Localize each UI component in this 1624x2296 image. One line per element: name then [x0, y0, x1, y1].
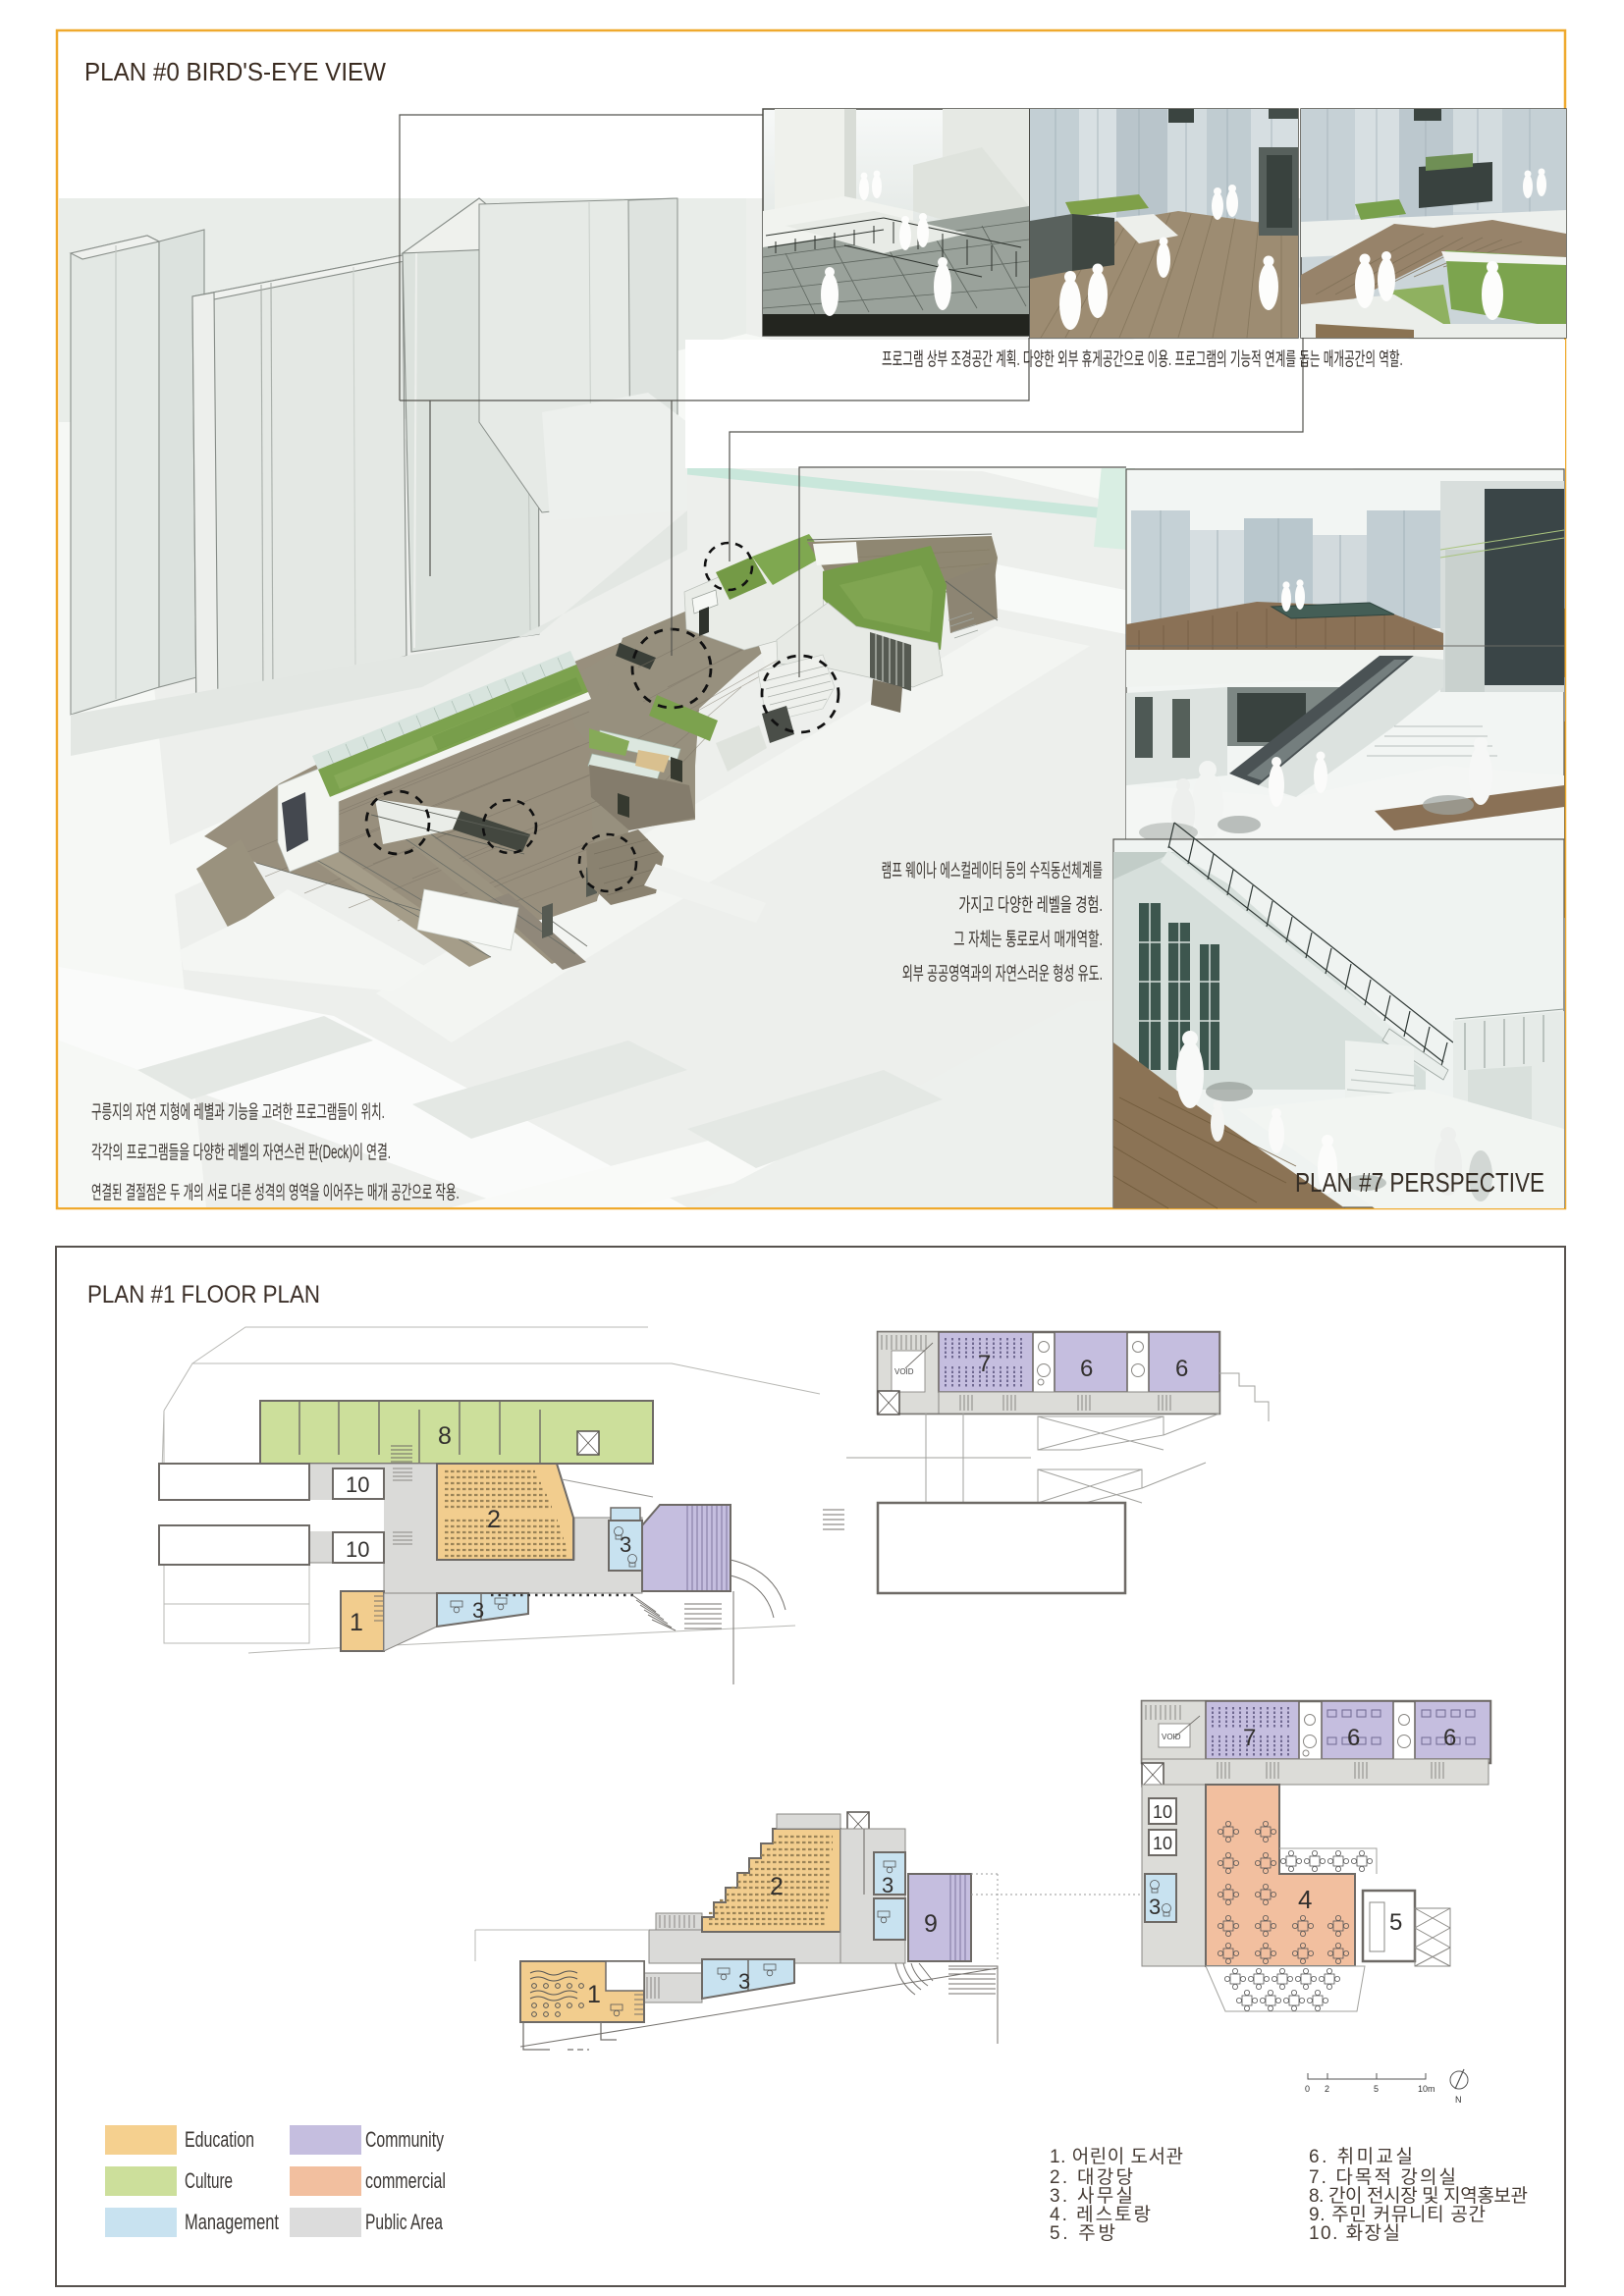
svg-text:6: 6 [1347, 1725, 1360, 1751]
svg-text:프로그램 상부 조경공간 계획. 다양한 외부 휴게공간으로: 프로그램 상부 조경공간 계획. 다양한 외부 휴게공간으로 이용. 프로그램의… [882, 348, 1403, 370]
svg-text:1: 1 [587, 1981, 601, 2008]
svg-text:VOID: VOID [894, 1367, 914, 1376]
svg-text:1: 1 [350, 1609, 363, 1636]
svg-text:4: 4 [1298, 1885, 1312, 1914]
svg-text:그 자체는 통로로서 매개역할.: 그 자체는 통로로서 매개역할. [953, 929, 1103, 949]
svg-text:2. 대강당: 2. 대강당 [1050, 2166, 1133, 2188]
svg-text:6: 6 [1080, 1356, 1093, 1382]
svg-text:6: 6 [1175, 1356, 1188, 1382]
svg-text:외부 공공영역과의 자연스러운 형성 유도.: 외부 공공영역과의 자연스러운 형성 유도. [902, 963, 1103, 985]
svg-text:3: 3 [738, 1969, 750, 1994]
svg-text:2: 2 [487, 1506, 501, 1533]
svg-text:0: 0 [1305, 2084, 1310, 2094]
svg-text:9: 9 [924, 1910, 938, 1938]
svg-text:3. 사무실: 3. 사무실 [1050, 2185, 1133, 2207]
svg-text:3: 3 [1149, 1895, 1161, 1919]
svg-text:10: 10 [346, 1472, 369, 1497]
svg-text:2: 2 [770, 1873, 784, 1900]
svg-text:5. 주방: 5. 주방 [1050, 2222, 1115, 2244]
svg-text:4. 레스토랑: 4. 레스토랑 [1050, 2204, 1151, 2225]
svg-text:10: 10 [1153, 1802, 1172, 1822]
svg-text:N: N [1455, 2095, 1462, 2105]
svg-text:3: 3 [472, 1598, 484, 1623]
svg-text:3: 3 [620, 1532, 631, 1557]
svg-text:10: 10 [346, 1537, 369, 1562]
svg-text:8: 8 [438, 1422, 452, 1450]
svg-text:PLAN #1 FLOOR PLAN: PLAN #1 FLOOR PLAN [87, 1281, 320, 1308]
svg-text:10. 화장실: 10. 화장실 [1309, 2222, 1400, 2244]
svg-text:램프 웨이나 에스컬레이터 등의 수직동선체계를: 램프 웨이나 에스컬레이터 등의 수직동선체계를 [882, 860, 1103, 881]
svg-text:2: 2 [1325, 2084, 1329, 2094]
svg-text:6. 취미교실: 6. 취미교실 [1309, 2146, 1413, 2167]
svg-text:3: 3 [882, 1873, 893, 1897]
svg-text:7. 다목적 강의실: 7. 다목적 강의실 [1309, 2166, 1456, 2188]
svg-text:10: 10 [1153, 1834, 1172, 1853]
svg-text:Education: Education [185, 2127, 254, 2152]
svg-text:9. 주민 커뮤니티 공간: 9. 주민 커뮤니티 공간 [1309, 2204, 1486, 2225]
svg-text:Culture: Culture [185, 2168, 233, 2193]
svg-text:각각의 프로그램들을 다양한 레벨의 자연스런 판(Deck: 각각의 프로그램들을 다양한 레벨의 자연스런 판(Deck)이 연결. [91, 1142, 391, 1163]
svg-text:10m: 10m [1418, 2084, 1435, 2094]
svg-text:5: 5 [1389, 1909, 1402, 1936]
svg-text:commercial: commercial [365, 2168, 446, 2193]
svg-text:PLAN #0 BIRD'S-EYE VIEW: PLAN #0 BIRD'S-EYE VIEW [84, 57, 386, 86]
svg-text:Management: Management [185, 2210, 279, 2234]
svg-text:1. 어린이 도서관: 1. 어린이 도서관 [1050, 2146, 1183, 2167]
svg-text:Public Area: Public Area [365, 2210, 444, 2234]
svg-text:8. 간이 전시장 및 지역홍보관: 8. 간이 전시장 및 지역홍보관 [1309, 2185, 1528, 2207]
svg-text:5: 5 [1374, 2084, 1379, 2094]
svg-text:7: 7 [978, 1351, 991, 1377]
svg-text:Community: Community [365, 2127, 444, 2152]
svg-text:PLAN #7 PERSPECTIVE: PLAN #7 PERSPECTIVE [1295, 1167, 1544, 1198]
svg-text:구릉지의 자연 지형에 레별과 기능을 고려한 프로그램들이: 구릉지의 자연 지형에 레별과 기능을 고려한 프로그램들이 위치. [91, 1101, 385, 1123]
svg-text:연결된 결절점은 두 개의 서로 다른 성격의 영역을 이어: 연결된 결절점은 두 개의 서로 다른 성격의 영역을 이어주는 매개 공간으로… [91, 1182, 460, 1203]
svg-text:가지고 다양한 레벨을 경험.: 가지고 다양한 레벨을 경험. [958, 895, 1103, 916]
svg-text:7: 7 [1243, 1725, 1256, 1751]
svg-text:6: 6 [1443, 1725, 1456, 1751]
